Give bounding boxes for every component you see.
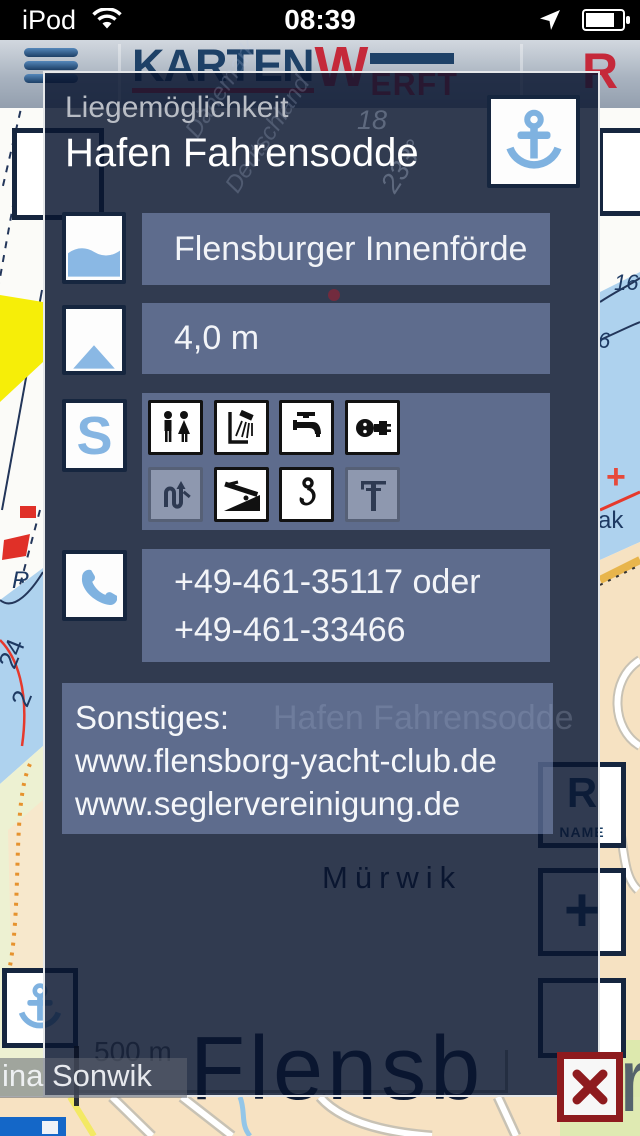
services-box bbox=[142, 393, 550, 530]
button-glyph bbox=[42, 1121, 58, 1134]
depth-field: 4,0 m bbox=[142, 303, 550, 374]
battery-icon bbox=[582, 9, 630, 31]
mooring-info-modal: Dänemark Deutschland 18 233° Hafen Fahre… bbox=[43, 71, 600, 1097]
service-crane-hook-icon bbox=[279, 467, 334, 522]
close-button[interactable] bbox=[557, 1052, 623, 1122]
anchor-button[interactable] bbox=[487, 95, 580, 188]
harbor-title: Hafen Fahrensodde bbox=[65, 131, 419, 176]
phone-field: +49-461-35117 oder +49-461-33466 bbox=[142, 549, 550, 662]
scale-bar-right-tick bbox=[505, 1050, 508, 1090]
depth-icon bbox=[62, 305, 126, 375]
services-letter: S bbox=[76, 409, 112, 463]
service-slipway-icon bbox=[214, 467, 269, 522]
map-button-top-right[interactable] bbox=[598, 128, 640, 216]
app-screen: R 24 2 16 6 + ak bbox=[0, 0, 640, 1136]
phone-icon bbox=[62, 550, 127, 621]
sonstiges-heading: Sonstiges: bbox=[75, 696, 553, 739]
marina-label: ina Sonwik bbox=[0, 1058, 187, 1098]
phone-number-2: +49-461-33466 bbox=[174, 606, 406, 654]
service-water-tap-icon bbox=[279, 400, 334, 455]
anchor-icon bbox=[503, 109, 565, 175]
service-shower-icon bbox=[214, 400, 269, 455]
service-wc-icon bbox=[148, 400, 203, 455]
water-region-field: Flensburger Innenförde bbox=[142, 213, 550, 285]
status-bar: iPod 08:39 bbox=[0, 0, 640, 40]
map-button-bottom-left[interactable] bbox=[0, 1117, 66, 1136]
service-waste-pumpout-icon bbox=[148, 467, 203, 522]
close-x-icon bbox=[570, 1067, 610, 1107]
logo-bar bbox=[370, 53, 454, 64]
services-icon: S bbox=[62, 399, 127, 472]
depth-16: 16 bbox=[614, 270, 639, 295]
svg-text:+: + bbox=[606, 458, 626, 496]
modal-type-label: Liegemöglichkeit bbox=[65, 91, 288, 125]
sonstiges-url-2[interactable]: www.seglervereinigung.de bbox=[75, 782, 553, 825]
service-electricity-icon bbox=[345, 400, 400, 455]
ghost-harbor-dot bbox=[328, 289, 340, 301]
service-mast-crane-icon bbox=[345, 467, 400, 522]
text-ak: ak bbox=[598, 507, 624, 534]
sonstiges-box: Sonstiges: www.flensborg-yacht-club.de w… bbox=[62, 683, 553, 834]
water-region-icon bbox=[62, 212, 126, 284]
phone-number-1: +49-461-35117 oder bbox=[174, 558, 481, 606]
sonstiges-url-1[interactable]: www.flensborg-yacht-club.de bbox=[75, 739, 553, 782]
location-arrow-icon bbox=[538, 8, 562, 32]
